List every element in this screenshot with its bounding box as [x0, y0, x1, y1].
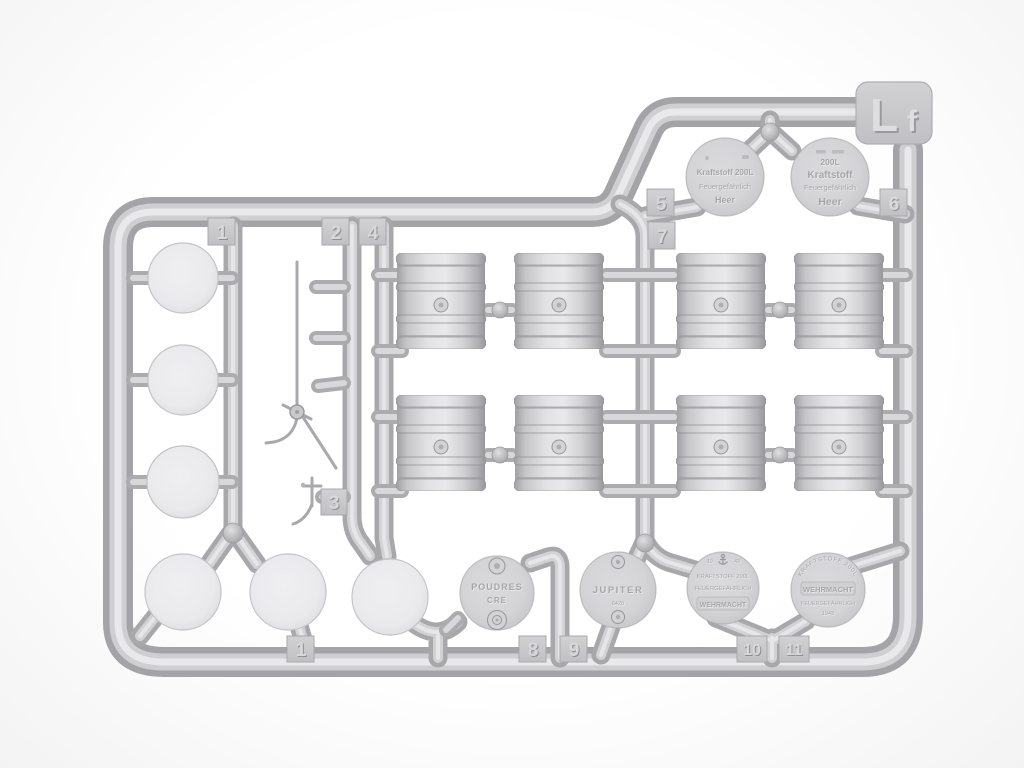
gate-number-7: 7	[657, 227, 668, 248]
bung-dot	[495, 618, 498, 621]
lid-text: Feuergefährlich	[699, 182, 751, 191]
barrel-half-r2c1	[396, 395, 486, 491]
gate-number-10: 10	[743, 642, 761, 659]
ball-joint	[492, 302, 508, 318]
lid-text: 19	[707, 559, 713, 565]
sprue-code-main: L	[870, 89, 898, 141]
barrel-half-r2c3	[676, 395, 766, 491]
lid-text: JUPITER	[593, 585, 644, 596]
gate-number-1-bottom: 1	[296, 640, 307, 661]
barrel-half-r1c3	[676, 253, 766, 349]
barrel-half-r1c2	[514, 253, 604, 349]
lid-text: FEUERGEFÄHRLICH	[694, 585, 751, 592]
drum-lid-blank-2	[148, 345, 218, 415]
drum-lid-blank-5	[250, 554, 326, 630]
gate-number-5: 5	[656, 194, 667, 215]
valve-wheel-hub	[295, 410, 299, 414]
gate-number-8: 8	[528, 640, 539, 661]
drum-lid-blank-6	[352, 559, 428, 635]
ball-joint	[772, 302, 788, 318]
bung-dot	[616, 560, 620, 564]
gate-number-1-top: 1	[217, 223, 228, 244]
gate-number-3: 3	[329, 493, 340, 514]
lid-text: KRAFTSTOFF 200L	[697, 574, 750, 580]
sprue-code-sub: f	[907, 105, 918, 138]
barrel-half-r2c4	[794, 395, 884, 491]
gate-number-2: 2	[331, 223, 342, 244]
gate-number-9: 9	[569, 640, 580, 661]
lid-text: POUDRES	[471, 582, 523, 592]
ball-joint	[772, 447, 788, 463]
bung-dot	[616, 615, 620, 619]
drum-lid-blank-1	[148, 243, 218, 313]
lid-text: Heer	[715, 195, 736, 205]
lid-mark	[742, 155, 749, 159]
bung-dot	[494, 563, 500, 569]
gate-number-11: 11	[786, 642, 803, 659]
lid-text: WEHRMACHT	[803, 585, 853, 594]
drum-lid-blank-4	[145, 554, 221, 630]
gate-number-4: 4	[368, 223, 379, 244]
lid-text: CRE	[487, 596, 507, 605]
lid-text: 6420	[612, 601, 624, 607]
lid-text: 200L	[820, 157, 839, 167]
lid-text: WEHRMACHT	[700, 602, 747, 609]
sprue-code-tab: L f L f	[856, 82, 932, 144]
sprue-photo: 1 2 4 3 5 7 6 1 8 9 10 11 L f L f Krafts	[0, 0, 1024, 768]
tap-handle-knob	[301, 483, 305, 487]
drum-lid-blank-3	[147, 446, 219, 518]
lid-text: Feuergefährlich	[804, 183, 856, 192]
small-parts	[266, 262, 336, 524]
lid-mark	[705, 156, 709, 160]
lid-text: FEUERGEFÄHRLICH	[801, 600, 855, 607]
lid-text: Kraftstoff 200L	[697, 168, 754, 177]
lid-text: 1943	[822, 611, 834, 617]
barrel-half-r1c4	[794, 253, 884, 349]
ball-joint	[492, 447, 508, 463]
lid-text: Kraftstoff	[808, 170, 854, 181]
lid-mark	[832, 150, 844, 154]
gate-number-6: 6	[889, 194, 900, 215]
barrel-half-r2c2	[514, 395, 604, 491]
lid-mark	[816, 150, 826, 154]
runner-y-joint	[223, 523, 243, 543]
lid-text: 43	[734, 559, 740, 565]
runner-y-joint	[636, 534, 654, 552]
barrel-half-r1c1	[396, 253, 486, 349]
runner-y-joint	[761, 123, 779, 141]
lid-text: Heer	[818, 196, 841, 208]
